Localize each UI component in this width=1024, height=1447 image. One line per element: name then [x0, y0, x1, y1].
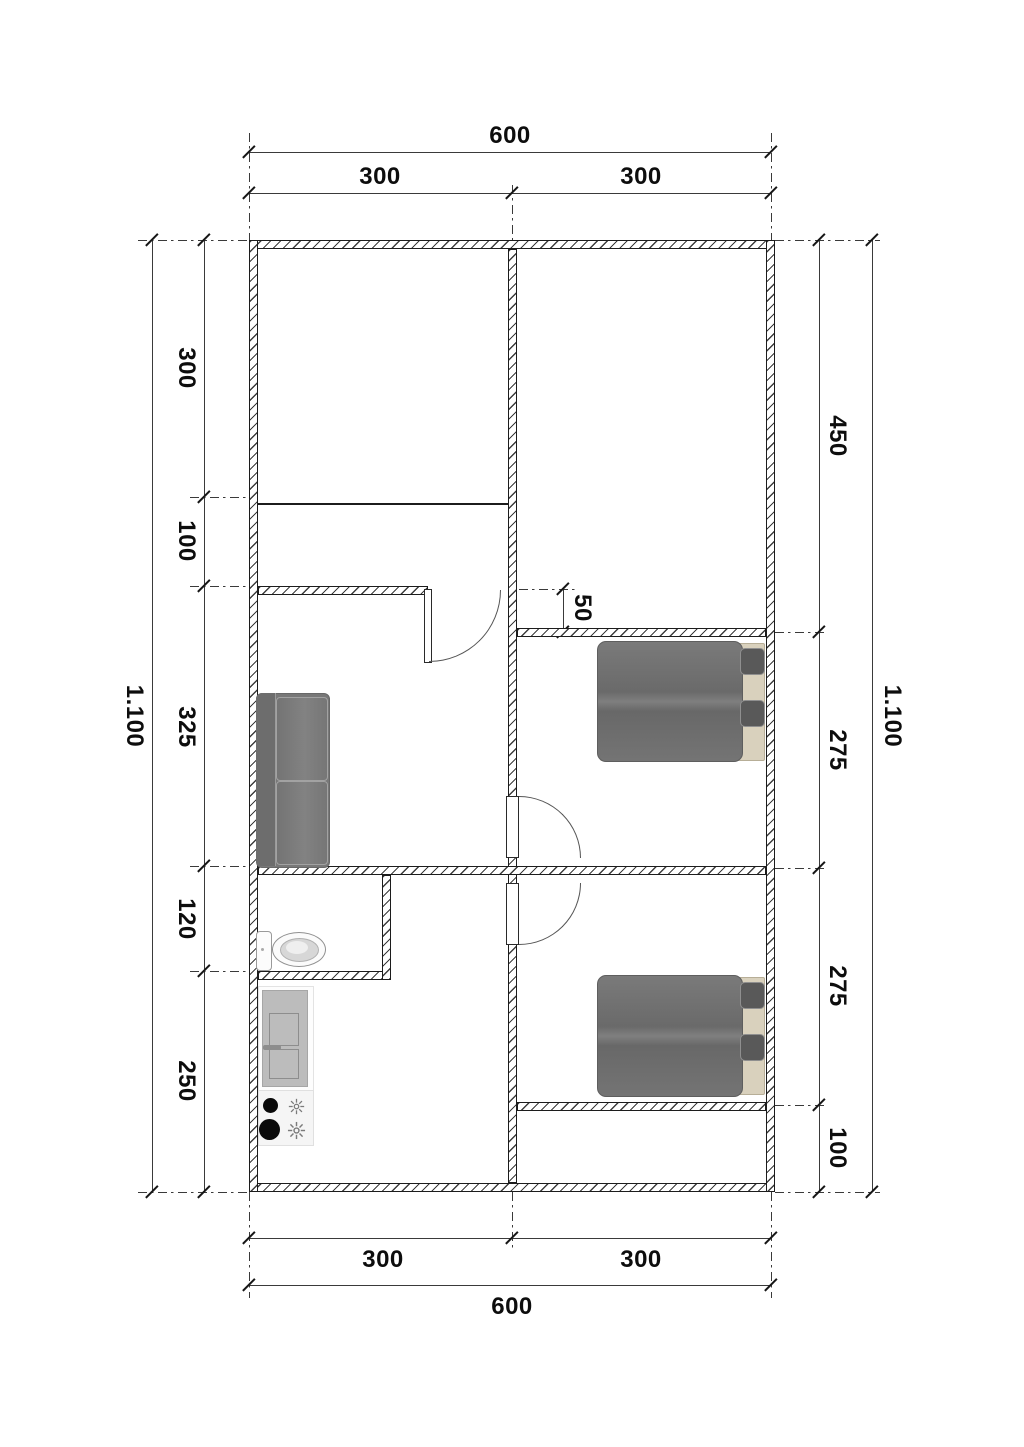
toilet-bowl-water: [286, 941, 308, 954]
dim-label-left-overall: 1.100: [120, 685, 148, 748]
dim-label-right-seg-1: 450: [823, 415, 851, 457]
wall-interior-bedroom1-top: [517, 628, 766, 637]
dim-label-top-overall: 600: [489, 122, 531, 150]
partition-line-top-room: [258, 503, 508, 505]
wall-interior-wc-bottom: [258, 971, 390, 980]
bed2-pillow: [740, 982, 765, 1009]
dim-label-left-seg-1: 300: [172, 347, 200, 389]
dim-label-left-seg-3: 325: [172, 706, 200, 748]
door-leaf-bedroom1: [506, 796, 519, 858]
dimension-line-wall-offset: [563, 589, 564, 632]
stove-burner: [263, 1098, 278, 1113]
toilet-tank-button: [261, 948, 264, 951]
door-swing-hall: [429, 590, 501, 662]
dim-label-bottom-overall: 600: [491, 1293, 533, 1321]
extension-line: [138, 240, 249, 241]
bed2-duvet: [597, 975, 743, 1097]
stove-burner: [259, 1119, 280, 1140]
sofa-backrest: [256, 693, 276, 866]
extension-line: [512, 1192, 513, 1252]
wall-interior-wc-right: [382, 875, 391, 980]
dim-label-right-seg-2: 275: [823, 729, 851, 771]
sink-faucet: [263, 1045, 281, 1050]
sink-basin: [269, 1049, 299, 1079]
dim-label-top-seg-2: 300: [620, 163, 662, 191]
extension-line: [138, 1192, 249, 1193]
dim-label-right-seg-3: 275: [823, 965, 851, 1007]
dimension-line-top-overall: [249, 152, 771, 153]
door-swing-bedroom1: [519, 796, 581, 858]
bed1-pillow: [740, 648, 765, 675]
extension-line: [519, 589, 575, 590]
extension-line: [775, 1192, 880, 1193]
dim-label-bottom-seg-1: 300: [362, 1246, 404, 1274]
dim-label-wall-offset: 50: [568, 594, 596, 622]
wall-interior-bedroom2-bottom: [517, 1102, 766, 1111]
dimension-line-left-overall: [152, 240, 153, 1192]
wall-interior-middle-horizontal: [258, 866, 766, 875]
sofa-cushion: [276, 697, 328, 781]
door-leaf-bedroom2: [506, 883, 519, 945]
dim-label-right-overall: 1.100: [878, 685, 906, 748]
dimension-line-bottom-overall: [249, 1285, 771, 1286]
extension-line: [775, 240, 880, 241]
wall-exterior-top: [249, 240, 775, 249]
bed1-pillow: [740, 700, 765, 727]
dimension-line-right-overall: [872, 240, 873, 1192]
floor-plan-sheet: 600 300 300 300 300 600 300 100 325 120 …: [0, 0, 1024, 1447]
bed1-duvet: [597, 641, 743, 762]
dim-label-left-seg-5: 250: [172, 1060, 200, 1102]
burner-flame-icon: [287, 1121, 306, 1140]
burner-flame-icon: [288, 1098, 305, 1115]
dim-label-left-seg-2: 100: [172, 520, 200, 562]
door-swing-bedroom2: [519, 883, 581, 945]
bed2-pillow: [740, 1034, 765, 1061]
dim-label-top-seg-1: 300: [359, 163, 401, 191]
wall-interior-hall-top: [258, 586, 428, 595]
dim-label-bottom-seg-2: 300: [620, 1246, 662, 1274]
wall-exterior-right: [766, 240, 775, 1192]
wall-exterior-bottom: [249, 1183, 775, 1192]
wall-interior-center-vertical: [508, 249, 517, 1183]
dim-label-right-seg-4: 100: [823, 1127, 851, 1169]
dim-label-left-seg-4: 120: [172, 898, 200, 940]
sink-basin: [269, 1013, 299, 1046]
sofa-cushion: [276, 781, 328, 865]
toilet-tank: [256, 931, 272, 971]
dimension-line-left-segments: [204, 240, 205, 1192]
dimension-line-right-segments: [819, 240, 820, 1192]
